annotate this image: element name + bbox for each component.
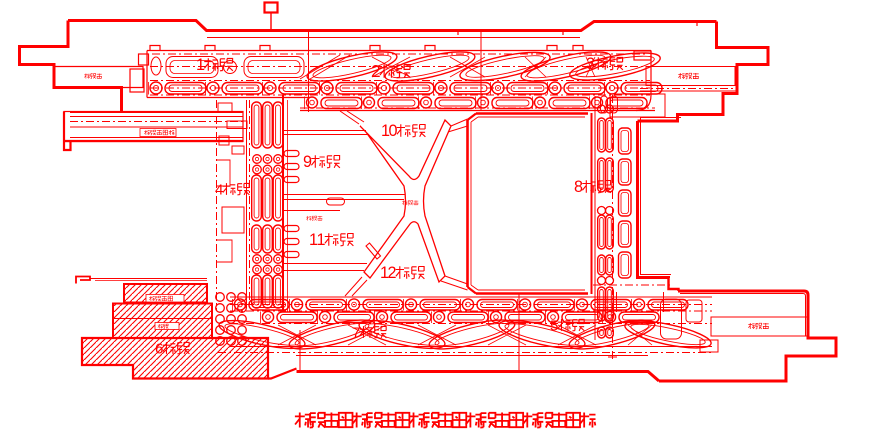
- svg-text:2: 2: [371, 61, 381, 81]
- svg-text:4: 4: [215, 181, 223, 198]
- svg-text:6: 6: [155, 340, 163, 357]
- svg-text:5: 5: [550, 317, 558, 334]
- svg-text:3: 3: [586, 55, 595, 73]
- svg-text:1: 1: [196, 56, 205, 74]
- svg-text:1: 1: [317, 231, 326, 249]
- svg-text:9: 9: [303, 153, 312, 171]
- svg-text:7: 7: [352, 324, 360, 341]
- svg-text:8: 8: [574, 178, 583, 196]
- svg-text:2: 2: [388, 264, 397, 282]
- svg-text:0: 0: [389, 122, 398, 140]
